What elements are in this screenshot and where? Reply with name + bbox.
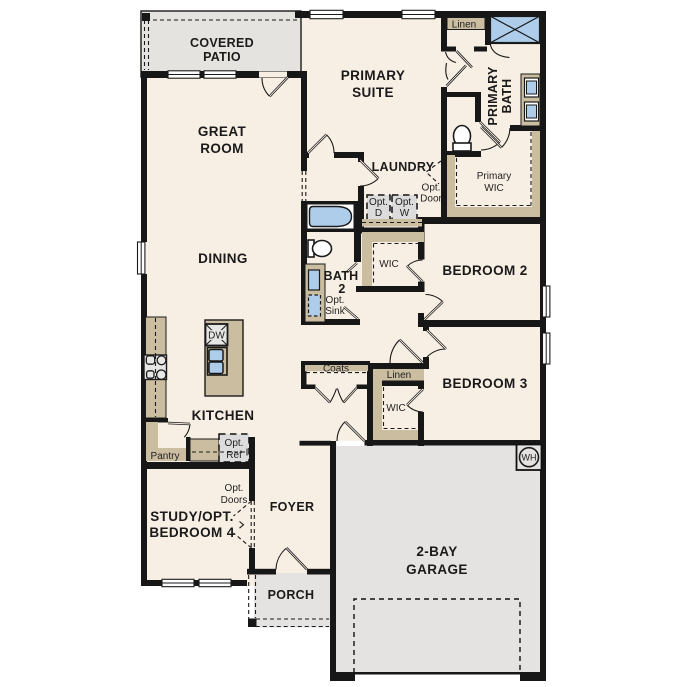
svg-text:Opt.: Opt. bbox=[225, 483, 244, 494]
svg-text:Door: Door bbox=[420, 194, 442, 205]
svg-text:Sink: Sink bbox=[325, 306, 345, 317]
svg-text:BATH: BATH bbox=[500, 79, 514, 114]
svg-text:PORCH: PORCH bbox=[268, 588, 315, 602]
svg-text:Opt.: Opt. bbox=[225, 438, 244, 449]
svg-text:Opt.: Opt. bbox=[422, 183, 441, 194]
svg-text:Opt.: Opt. bbox=[326, 295, 345, 306]
svg-text:Coats: Coats bbox=[323, 364, 349, 375]
svg-text:FOYER: FOYER bbox=[270, 500, 315, 514]
svg-text:Linen: Linen bbox=[387, 370, 411, 381]
svg-text:GREAT: GREAT bbox=[198, 124, 247, 139]
svg-text:WH: WH bbox=[522, 453, 537, 463]
svg-text:2: 2 bbox=[338, 282, 345, 296]
svg-text:Primary: Primary bbox=[477, 171, 511, 182]
svg-text:BEDROOM 3: BEDROOM 3 bbox=[442, 376, 527, 391]
svg-text:Linen: Linen bbox=[452, 20, 476, 31]
svg-text:BATH: BATH bbox=[324, 269, 359, 283]
svg-text:KITCHEN: KITCHEN bbox=[192, 408, 255, 423]
svg-text:DW: DW bbox=[208, 331, 225, 342]
svg-text:Doors: Doors bbox=[221, 495, 248, 506]
svg-text:WIC: WIC bbox=[379, 259, 398, 270]
svg-text:Opt.: Opt. bbox=[395, 197, 414, 208]
svg-text:PRIMARY: PRIMARY bbox=[486, 66, 500, 126]
svg-text:BEDROOM 2: BEDROOM 2 bbox=[442, 263, 527, 278]
svg-text:GARAGE: GARAGE bbox=[406, 562, 468, 577]
svg-text:Pantry: Pantry bbox=[151, 451, 180, 462]
svg-text:LAUNDRY: LAUNDRY bbox=[372, 160, 435, 174]
svg-text:ROOM: ROOM bbox=[200, 141, 244, 156]
svg-text:WIC: WIC bbox=[484, 183, 503, 194]
svg-text:SUITE: SUITE bbox=[352, 85, 394, 100]
svg-text:PATIO: PATIO bbox=[203, 50, 241, 64]
svg-text:PRIMARY: PRIMARY bbox=[341, 68, 406, 83]
svg-text:STUDY/OPT.: STUDY/OPT. bbox=[150, 509, 234, 524]
svg-text:COVERED: COVERED bbox=[190, 36, 254, 50]
svg-text:2-BAY: 2-BAY bbox=[416, 544, 457, 559]
svg-text:BEDROOM 4: BEDROOM 4 bbox=[149, 525, 234, 540]
svg-text:Opt.: Opt. bbox=[369, 197, 388, 208]
svg-text:WIC: WIC bbox=[386, 403, 405, 414]
svg-text:DINING: DINING bbox=[198, 251, 248, 266]
svg-text:W: W bbox=[400, 208, 410, 219]
svg-text:D: D bbox=[375, 208, 382, 219]
